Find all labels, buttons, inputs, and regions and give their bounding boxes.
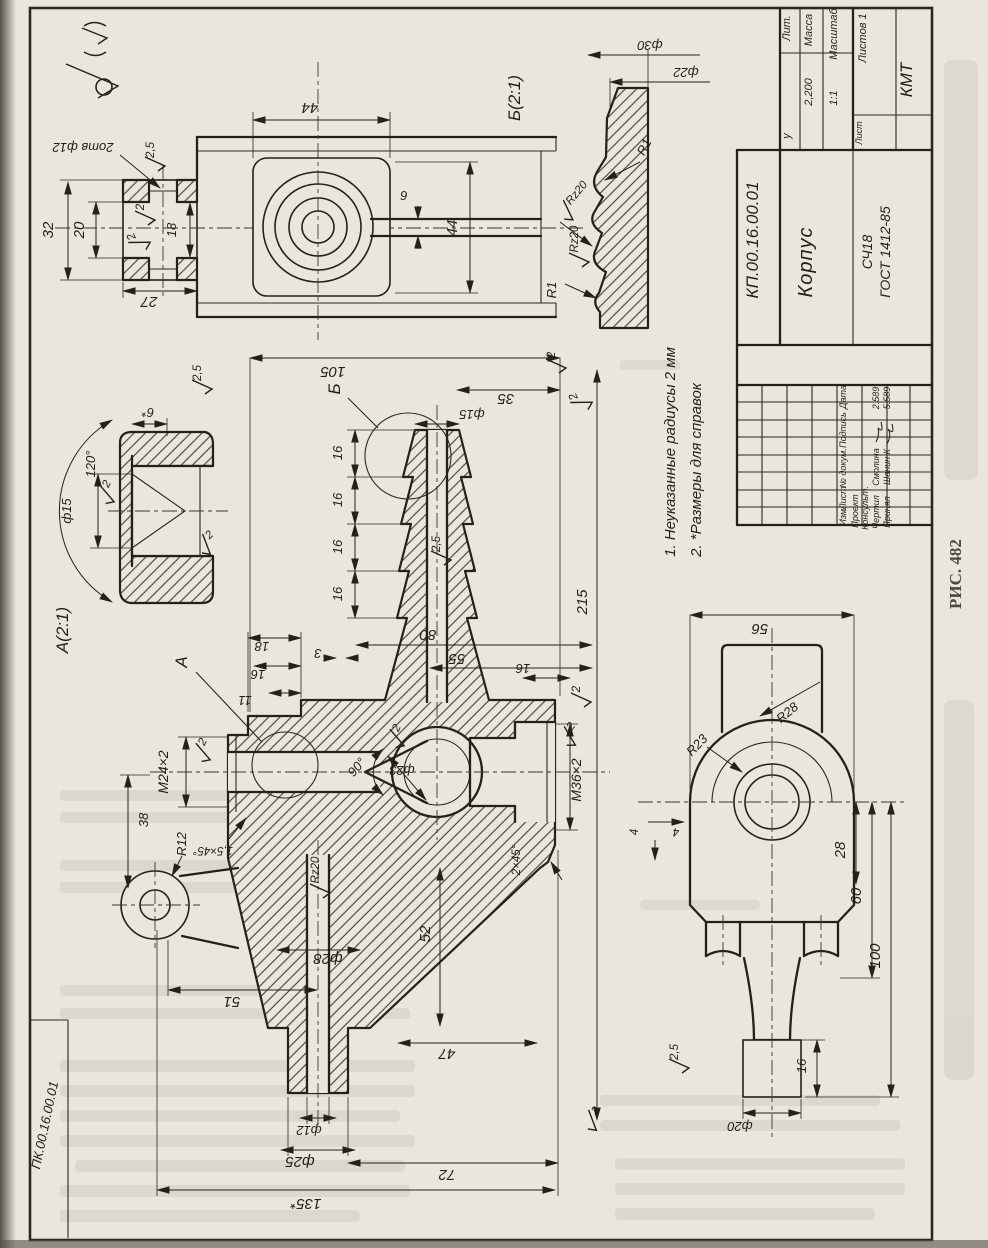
dim-6-slot: 6 [400,188,408,203]
tb-col-list: Лист [838,486,848,511]
rough-2: 2 [135,203,147,211]
dim-215: 215 [574,589,591,616]
dim-51: 51 [224,993,241,1010]
tb-material-2: ГОСТ 1412-85 [877,206,893,298]
tb-row-chertil: Чертил [871,495,881,529]
dim-44-right: 44 [444,220,461,237]
dim-f25: ф25 [285,1153,315,1170]
figure-caption: РИС. 482 [946,539,965,609]
dim-47: 47 [438,1045,455,1062]
note-2: 2. *Размеры для справок [688,382,705,558]
tb-chertil-name: Смолина [871,448,881,486]
dim-38: 38 [136,812,151,827]
dim-4b: 4 [629,829,641,835]
rough-2-5: 2,5 [145,141,157,159]
tb-lit-label: Лит. [781,15,793,42]
dim-f20: ф20 [727,1119,753,1134]
dim-m36x2: М36×2 [568,758,584,801]
dim-105: 105 [320,363,346,380]
dim-16-left: 16 [250,667,265,682]
rough-2-5-side: 2,5 [669,1043,681,1061]
dim-32: 32 [40,221,57,238]
dim-28: 28 [832,841,849,859]
tb-row-prinyal: Принял [882,496,892,527]
dim-52: 52 [417,925,434,942]
callout-b: Б [325,383,344,394]
dim-18-left: 18 [164,222,179,237]
rough-2: 2 [571,685,583,693]
detail-a-title: А(2:1) [53,607,72,654]
tb-mass-label: Масса [803,14,815,47]
tb-col-sign: Подпись [838,412,848,448]
tb-sheets-label: Листов 1 [857,13,869,63]
dim-18: 18 [254,639,269,654]
dim-16d: 16 [330,586,345,601]
dim-16-side: 16 [794,1058,809,1073]
dim-6star: 6* [141,405,154,420]
dim-55: 55 [448,650,465,667]
dim-135: 135* [289,1195,321,1212]
dim-r1b: R1 [544,282,559,299]
dim-27: 27 [140,293,158,310]
dim-16c: 16 [330,539,345,554]
dim-56: 56 [751,620,768,637]
tb-prinyal-date: 5.589 [882,387,892,410]
tb-organization: КМТ [897,61,916,97]
tb-scale-label: Масштаб [828,8,840,60]
dim-chamfer-2: 2×45° [511,844,523,876]
dim-f15-detail: ф15 [59,498,74,524]
dim-f23: ф23 [389,763,415,778]
dim-chamfer-1-5: 1,5×45° [193,844,233,856]
dim-f30: ф30 [637,38,663,53]
dim-44-top: 44 [302,99,319,116]
rough-2-5-a: 2,5 [192,364,204,382]
callout-a: А [172,656,191,668]
rough-2-5-bore: 2,5 [431,535,443,553]
scanned-drawing-page: ПК.00.16.00.01 32 20 [0,0,988,1248]
tb-sheet-label: Лист [854,121,864,146]
dim-f22: ф22 [673,65,699,80]
dim-100: 100 [867,943,884,969]
tb-col-doc: № докум. [838,448,848,488]
tb-designation: КП.00.16.00.01 [743,182,762,299]
dim-3: 3 [314,646,322,661]
rough-2: 2 [546,351,558,359]
tb-scale-value: 1:1 [828,90,840,105]
dim-2otv-f12: 2отв ф12 [52,140,115,155]
tb-material-1: СЧ18 [859,235,875,270]
dim-4a: 4 [673,825,679,837]
dim-m24x2: М24×2 [155,750,171,793]
dim-16b: 16 [330,492,345,507]
dim-16e: 16 [515,661,530,676]
dim-16a: 16 [330,445,345,460]
page-bottom-edge [0,1240,988,1248]
tb-row-proekt: Проект [850,494,860,528]
dim-11: 11 [238,693,252,708]
detail-b-title: Б(2:1) [505,75,524,121]
tb-mass-value: 2,200 [803,77,815,106]
book-gutter-shadow [0,0,16,1248]
tb-prinyal-name: Шанин К [882,448,892,485]
dim-35: 35 [497,390,514,407]
engineering-drawing: ПК.00.16.00.01 32 20 [0,0,988,1248]
dim-f12: ф12 [296,1123,322,1138]
dim-72: 72 [438,1166,455,1183]
dim-f28: ф28 [313,950,343,967]
dim-80: 80 [419,626,436,643]
dim-f15: ф15 [459,407,485,422]
dim-20: 20 [71,221,88,239]
tb-col-date: Дата [838,385,848,410]
tb-part-name: Корпус [795,226,817,297]
tb-chertil-date: 2.589 [871,387,881,411]
rough-rz20-b: Rz20 [569,225,581,252]
rough-rz20-bore: Rz20 [310,856,322,883]
dim-60: 60 [848,887,865,904]
dim-r12: R12 [174,831,189,856]
tb-row-konsult: Консульт. [860,486,870,530]
dim-120deg: 120° [83,451,98,478]
note-1: 1. Неуказанные радиусы 2 мм [662,347,679,557]
